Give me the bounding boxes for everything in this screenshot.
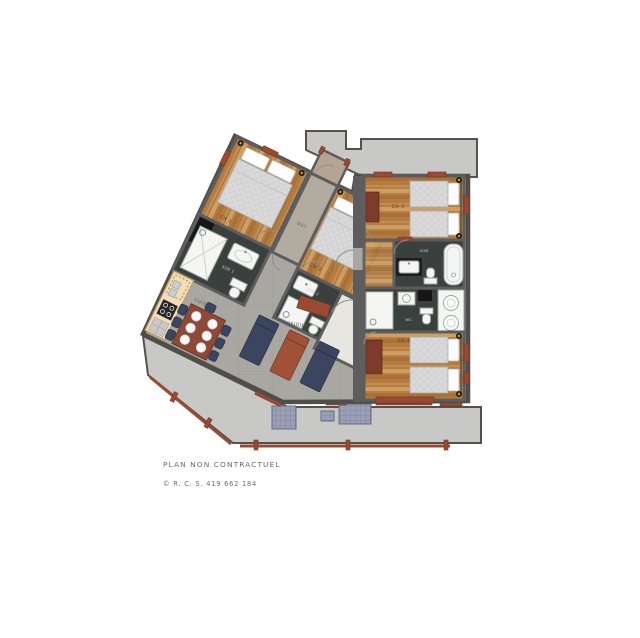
floor-plan-page: CH 1 DGT CH 2: [0, 0, 640, 638]
floor-plan: CH 1 DGT CH 2: [0, 0, 640, 638]
pillow: [448, 339, 459, 361]
twin-bed: [410, 181, 448, 207]
room-label-wc: WC: [405, 317, 412, 322]
twin-bed: [410, 211, 448, 237]
caption-line2: © R. C. S. 419 662 184: [163, 480, 257, 488]
wc-room: WC: [364, 288, 464, 332]
wardrobe: [366, 340, 382, 374]
bathtub: [444, 244, 463, 285]
shower: [366, 292, 393, 329]
room-label-ch4: CH 4: [398, 338, 411, 344]
double-washbasin: [438, 290, 464, 332]
bathroom: SDB: [394, 237, 464, 288]
washbasin: [396, 258, 422, 276]
room-label-ch3: CH 3: [392, 204, 405, 210]
washing-machine: [398, 292, 415, 305]
wardrobe: [366, 192, 379, 222]
bedroom-3: CH 3: [364, 176, 464, 240]
pillow: [448, 213, 459, 235]
pillow: [448, 183, 459, 205]
pillow: [448, 369, 459, 391]
caption-line1: PLAN NON CONTRACTUEL: [163, 460, 281, 469]
twin-bed: [410, 367, 448, 393]
room-label-sdb: SDB: [419, 248, 428, 253]
twin-bed: [410, 337, 448, 363]
bath-hallway: [364, 240, 394, 288]
planter: [376, 397, 434, 403]
shelf: [418, 290, 432, 301]
bedroom-4: CH 4: [364, 332, 464, 400]
